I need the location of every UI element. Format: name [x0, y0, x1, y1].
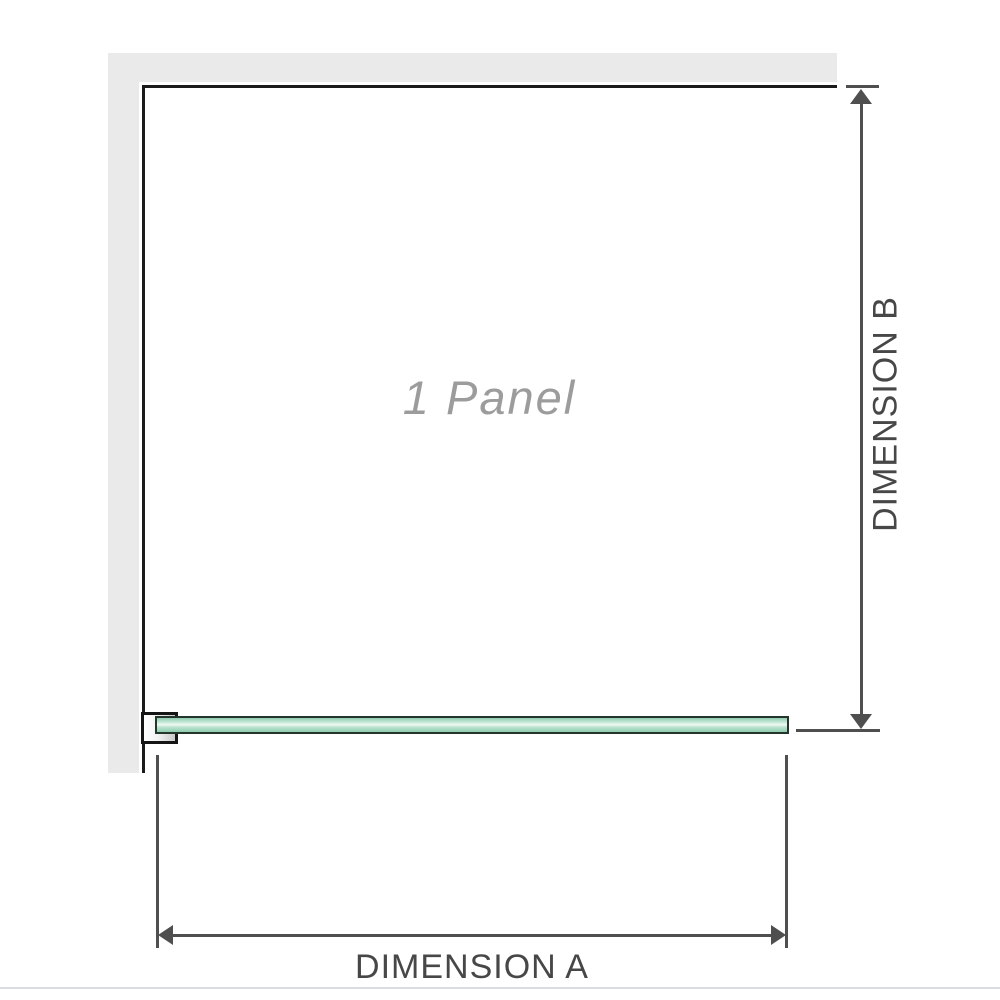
- panel-outline-top: [142, 85, 837, 88]
- dimension-b-label: DIMENSION B: [867, 296, 906, 532]
- image-baseline: [0, 987, 1000, 989]
- glass-panel: [155, 716, 789, 734]
- dimension-b-tick-bottom: [796, 729, 880, 732]
- panel-area-label: 1 Panel: [142, 370, 837, 425]
- dimension-a-extension-left: [156, 755, 159, 948]
- dimension-b-arrow-up-icon: [850, 89, 872, 104]
- dimension-b-arrow-down-icon: [850, 714, 872, 729]
- wall-left: [108, 53, 139, 773]
- dimension-a-line: [171, 934, 772, 937]
- dimension-b-line: [860, 102, 863, 715]
- dimension-a-arrow-left-icon: [158, 925, 173, 945]
- dimension-b-tick-top: [846, 85, 879, 88]
- dimension-a-label: DIMENSION A: [158, 948, 786, 987]
- diagram-canvas: 1 Panel DIMENSION B DIMENSION A: [0, 0, 1000, 1000]
- dimension-a-arrow-right-icon: [771, 925, 786, 945]
- panel-outline-left: [142, 85, 145, 773]
- wall-top: [108, 53, 837, 82]
- dimension-a-extension-right: [785, 755, 788, 948]
